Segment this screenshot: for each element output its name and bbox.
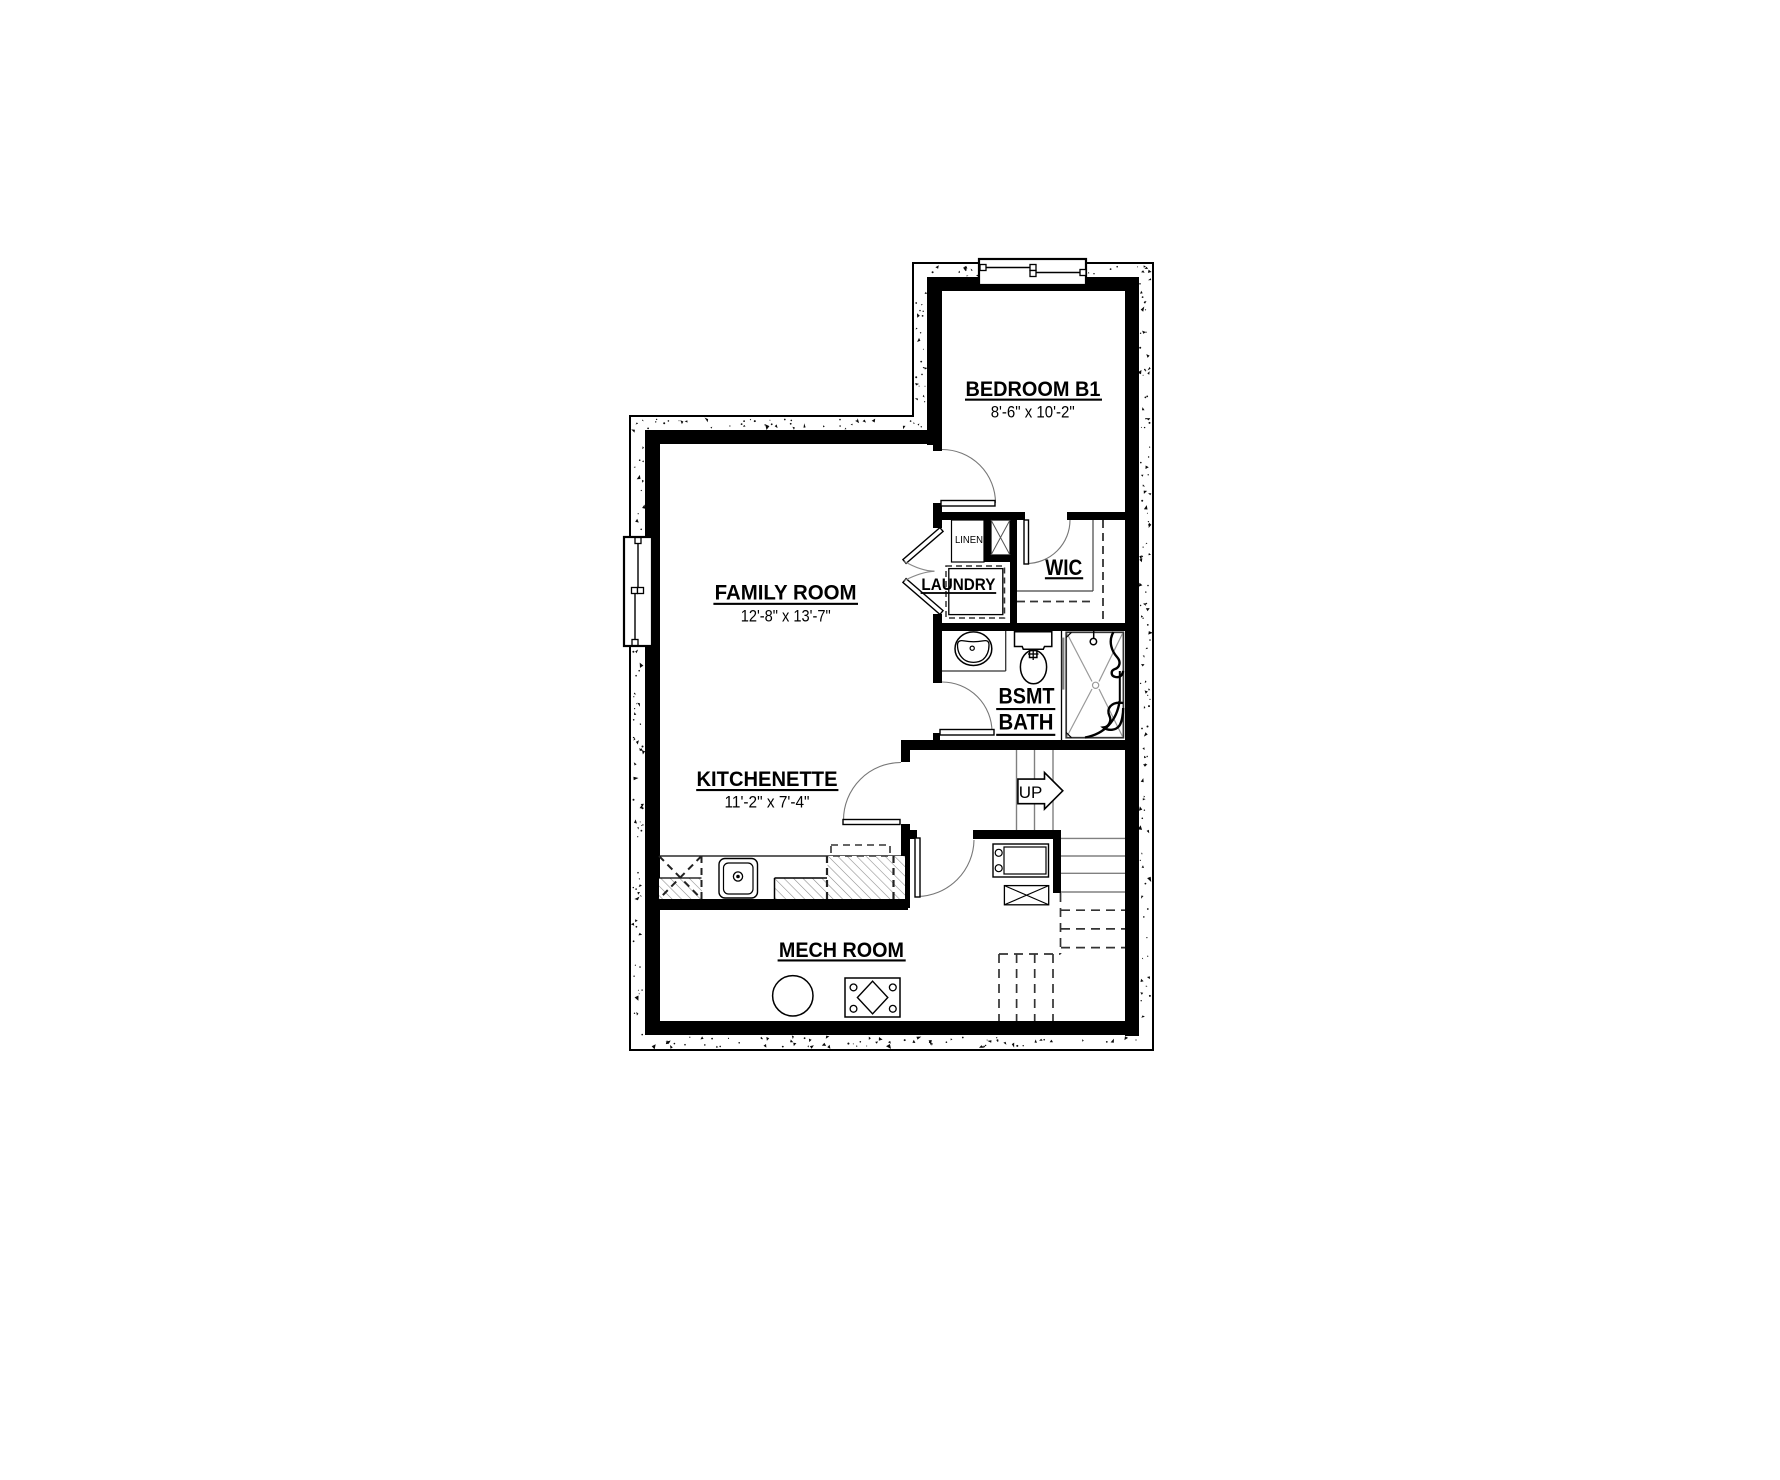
svg-text:BATH: BATH <box>999 710 1054 735</box>
svg-text:WIC: WIC <box>1045 555 1082 580</box>
svg-text:LINEN: LINEN <box>955 535 983 546</box>
svg-text:KITCHENETTE: KITCHENETTE <box>697 768 838 791</box>
svg-text:FAMILY ROOM: FAMILY ROOM <box>715 582 857 605</box>
svg-text:BSMT: BSMT <box>999 684 1056 709</box>
svg-text:8'-6" x 10'-2": 8'-6" x 10'-2" <box>991 403 1075 422</box>
svg-text:BEDROOM B1: BEDROOM B1 <box>966 378 1101 401</box>
svg-text:MECH ROOM: MECH ROOM <box>779 939 904 962</box>
svg-text:12'-8" x 13'-7": 12'-8" x 13'-7" <box>741 607 831 626</box>
svg-text:UP: UP <box>1019 783 1043 802</box>
svg-text:LAUNDRY: LAUNDRY <box>921 575 996 594</box>
svg-text:11'-2" x 7'-4": 11'-2" x 7'-4" <box>725 793 810 812</box>
